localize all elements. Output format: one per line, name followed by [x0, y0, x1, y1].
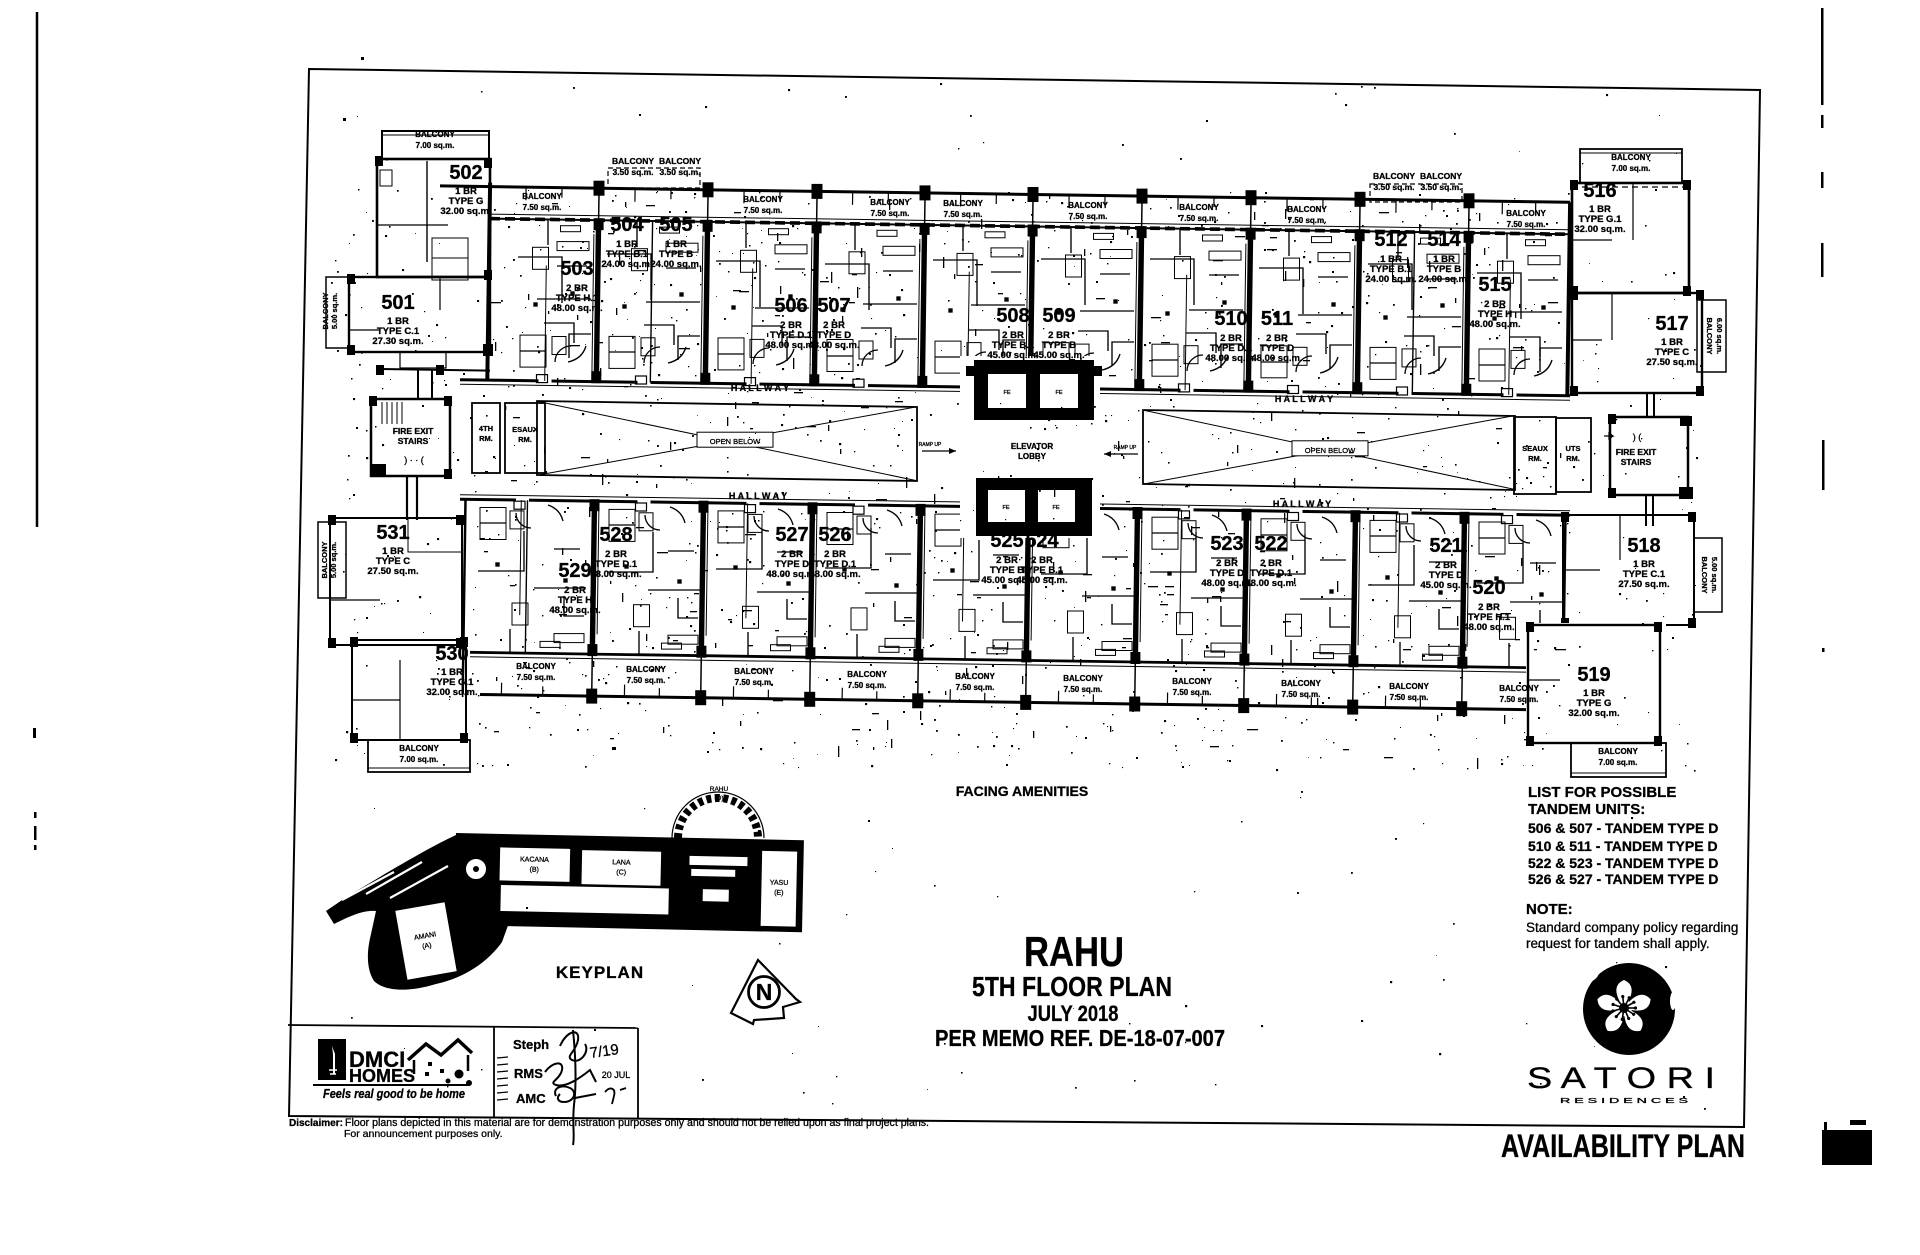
svg-text:(C): (C): [616, 869, 626, 876]
svg-text:528: 528: [599, 524, 632, 546]
svg-text:508: 508: [996, 305, 1029, 327]
svg-text:5.00 sq.m.: 5.00 sq.m.: [329, 542, 338, 578]
svg-text:7.00 sq.m.: 7.00 sq.m.: [416, 141, 455, 150]
svg-text:H A L L W A Y: H A L L W A Y: [729, 491, 787, 501]
svg-text:45.00 sq.m.: 45.00 sq.m.: [987, 350, 1038, 361]
svg-text:BALCONY: BALCONY: [399, 744, 439, 753]
svg-text:RM.: RM.: [479, 434, 493, 443]
svg-text:FIRE EXIT: FIRE EXIT: [1616, 447, 1657, 457]
svg-text:516: 516: [1583, 180, 1616, 202]
svg-text:FACING AMENITIES: FACING AMENITIES: [956, 783, 1089, 799]
svg-text:BALCONY: BALCONY: [1389, 682, 1429, 691]
svg-text:BALCONY: BALCONY: [1063, 674, 1103, 683]
svg-text:48.00 sq.m.: 48.00 sq.m.: [808, 340, 859, 351]
svg-text:509: 509: [1042, 305, 1075, 327]
svg-text:501: 501: [381, 292, 414, 314]
svg-text:524: 524: [1025, 530, 1059, 552]
svg-text:AVAILABILITY PLAN: AVAILABILITY PLAN: [1501, 1128, 1745, 1164]
svg-text:FIRE EXIT: FIRE EXIT: [393, 426, 434, 436]
svg-text:OPEN BELOW: OPEN BELOW: [1305, 446, 1356, 455]
svg-text:7.00 sq.m.: 7.00 sq.m.: [400, 755, 439, 764]
svg-text:526 & 527 - TANDEM TYPE D: 526 & 527 - TANDEM TYPE D: [1528, 871, 1718, 887]
svg-text:NOTE:: NOTE:: [1526, 901, 1573, 918]
svg-text:523: 523: [1210, 533, 1243, 555]
svg-text:7/19: 7/19: [589, 1041, 620, 1062]
svg-text:7.50 sq.m.: 7.50 sq.m.: [1180, 214, 1219, 223]
svg-text:7.50 sq.m.: 7.50 sq.m.: [1390, 693, 1429, 702]
svg-text:4TH: 4TH: [479, 424, 493, 433]
svg-text:7.50 sq.m.: 7.50 sq.m.: [517, 673, 556, 682]
svg-text:BALCONY: BALCONY: [1179, 203, 1219, 212]
svg-text:3.50 sq.m.: 3.50 sq.m.: [612, 167, 653, 177]
svg-text:510: 510: [1214, 308, 1247, 330]
svg-text:45.00 sq.m.: 45.00 sq.m.: [1420, 580, 1471, 591]
svg-text:45.00 sq.m.: 45.00 sq.m.: [1016, 575, 1067, 586]
svg-text:BALCONY: BALCONY: [1506, 209, 1546, 218]
svg-text:7.50 sq.m.: 7.50 sq.m.: [1173, 688, 1212, 697]
svg-text:Feels real good to be home: Feels real good to be home: [323, 1086, 465, 1101]
svg-text:BALCONY: BALCONY: [1373, 171, 1415, 181]
svg-text:506 & 507 - TANDEM TYPE D: 506 & 507 - TANDEM TYPE D: [1528, 820, 1718, 836]
svg-text:PER MEMO REF. DE-18-07-007: PER MEMO REF. DE-18-07-007: [935, 1025, 1225, 1051]
svg-text:27.50 sq.m.: 27.50 sq.m.: [1646, 357, 1697, 368]
svg-text:48.00 sq.m.: 48.00 sq.m.: [1245, 578, 1296, 589]
svg-text:BALCONY: BALCONY: [734, 667, 774, 676]
svg-text:7.50 sq.m.: 7.50 sq.m.: [1064, 685, 1103, 694]
svg-text:5.00 sq.m.: 5.00 sq.m.: [330, 293, 339, 329]
svg-text:7.50 sq.m.: 7.50 sq.m.: [1069, 212, 1108, 221]
svg-text:5TH FLOOR PLAN: 5TH FLOOR PLAN: [972, 971, 1172, 1002]
svg-text:BALCONY: BALCONY: [516, 662, 556, 671]
svg-text:525: 525: [990, 530, 1023, 552]
svg-text:27.50 sq.m.: 27.50 sq.m.: [367, 566, 418, 577]
svg-text:TANDEM UNITS:: TANDEM UNITS:: [1528, 801, 1645, 818]
svg-text:RAMP UP: RAMP UP: [1114, 445, 1137, 451]
svg-text:526: 526: [818, 524, 851, 546]
svg-text:ESAUX: ESAUX: [512, 425, 538, 434]
svg-text:BALCONY: BALCONY: [1172, 677, 1212, 686]
svg-text:Steph: Steph: [513, 1037, 549, 1052]
svg-text:BALCONY: BALCONY: [870, 198, 910, 207]
svg-text:7.50 sq.m.: 7.50 sq.m.: [848, 681, 887, 690]
svg-text:BALCONY: BALCONY: [522, 192, 562, 201]
svg-text:Standard company policy regard: Standard company policy regarding: [1526, 920, 1738, 935]
svg-text:7.50 sq.m.: 7.50 sq.m.: [627, 676, 666, 685]
svg-text:BALCONY: BALCONY: [847, 670, 887, 679]
svg-text:BALCONY: BALCONY: [1700, 556, 1709, 593]
svg-text:7.50 sq.m.: 7.50 sq.m.: [871, 209, 910, 218]
svg-text:48.00 sq.m.: 48.00 sq.m.: [551, 303, 602, 314]
svg-text:KEYPLAN: KEYPLAN: [556, 963, 644, 982]
svg-text:BALCONY: BALCONY: [1420, 171, 1462, 181]
svg-text:BALCONY: BALCONY: [1611, 153, 1651, 162]
svg-text:32.00 sq.m.: 32.00 sq.m.: [1574, 224, 1625, 235]
svg-text:32.00 sq.m.: 32.00 sq.m.: [440, 206, 491, 217]
svg-text:RAMP UP: RAMP UP: [919, 442, 942, 448]
svg-text:FE: FE: [1002, 505, 1009, 511]
svg-text:RMS: RMS: [514, 1066, 543, 1081]
svg-text:LOBBY: LOBBY: [1018, 452, 1047, 461]
svg-text:UTS: UTS: [1566, 444, 1581, 453]
svg-text:7.50 sq.m.: 7.50 sq.m.: [744, 206, 783, 215]
svg-text:BALCONY: BALCONY: [743, 195, 783, 204]
svg-text:32.00 sq.m.: 32.00 sq.m.: [426, 687, 477, 698]
svg-text:(D): (D): [714, 795, 723, 802]
svg-text:506: 506: [774, 295, 807, 317]
svg-text:503: 503: [560, 258, 593, 280]
svg-text:530: 530: [435, 643, 468, 665]
svg-text:BALCONY: BALCONY: [955, 672, 995, 681]
svg-text:48.00 sq.m.: 48.00 sq.m.: [1463, 622, 1514, 633]
svg-text:BALCONY: BALCONY: [1287, 205, 1327, 214]
svg-text:N: N: [756, 979, 773, 1005]
svg-text:48.00 sq.m.: 48.00 sq.m.: [1469, 319, 1520, 330]
svg-text:BALCONY: BALCONY: [1281, 679, 1321, 688]
svg-text:request for tandem shall apply: request for tandem shall apply.: [1526, 936, 1710, 951]
svg-text:7.50 sq.m.: 7.50 sq.m.: [944, 210, 983, 219]
svg-text:FE: FE: [1052, 505, 1059, 511]
svg-text:527: 527: [775, 524, 808, 546]
svg-text:R E S I D E N C E S: R E S I D E N C E S: [1560, 1096, 1688, 1105]
svg-text:512: 512: [1374, 229, 1407, 251]
svg-text:SEAUX: SEAUX: [1522, 444, 1548, 453]
svg-text:3.50 sq.m.: 3.50 sq.m.: [1420, 182, 1461, 192]
svg-text:RM.: RM.: [518, 435, 532, 444]
svg-text:48.00 sq.m.: 48.00 sq.m.: [1205, 353, 1256, 364]
svg-text:48.00 sq.m.: 48.00 sq.m.: [1251, 353, 1302, 364]
svg-text:517: 517: [1655, 313, 1688, 335]
svg-text:5.00 sq.m.: 5.00 sq.m.: [1710, 557, 1719, 593]
svg-text:BALCONY: BALCONY: [659, 156, 701, 166]
svg-text:BALCONY: BALCONY: [612, 156, 654, 166]
svg-text:510 & 511 - TANDEM TYPE D: 510 & 511 - TANDEM TYPE D: [1528, 838, 1718, 854]
svg-text:48.00 sq.m.: 48.00 sq.m.: [590, 569, 641, 580]
svg-text:7.00 sq.m.: 7.00 sq.m.: [1612, 164, 1651, 173]
svg-text:7.50 sq.m.: 7.50 sq.m.: [1507, 220, 1546, 229]
svg-text:521: 521: [1429, 535, 1462, 557]
svg-text:LIST FOR POSSIBLE: LIST FOR POSSIBLE: [1528, 784, 1676, 801]
svg-text:RAHU: RAHU: [710, 786, 729, 793]
svg-text:504: 504: [610, 214, 644, 236]
svg-text:24.00 sq.m.: 24.00 sq.m.: [601, 259, 652, 270]
svg-text:502: 502: [449, 162, 482, 184]
svg-text:STAIRS: STAIRS: [398, 436, 429, 446]
svg-text:RM.: RM.: [1566, 454, 1580, 463]
svg-text:BALCONY: BALCONY: [1705, 317, 1714, 354]
svg-text:27.50 sq.m.: 27.50 sq.m.: [1618, 579, 1669, 590]
svg-text:24.00 sq.m.: 24.00 sq.m.: [650, 259, 701, 270]
svg-text:520: 520: [1472, 577, 1505, 599]
svg-text:518: 518: [1627, 535, 1660, 557]
svg-text:32.00 sq.m.: 32.00 sq.m.: [1568, 708, 1619, 719]
svg-text:7.50 sq.m.: 7.50 sq.m.: [1500, 695, 1539, 704]
svg-text:505: 505: [659, 214, 692, 236]
svg-text:BALCONY: BALCONY: [321, 292, 330, 329]
svg-text:48.00 sq.m.: 48.00 sq.m.: [549, 605, 600, 616]
svg-text:7.50 sq.m.: 7.50 sq.m.: [735, 678, 774, 687]
svg-text:522: 522: [1254, 533, 1287, 555]
svg-text:BALCONY: BALCONY: [320, 541, 329, 578]
svg-text:(B): (B): [529, 867, 538, 874]
svg-text:HOMES: HOMES: [349, 1066, 415, 1086]
svg-text:24.00 sq.m.: 24.00 sq.m.: [1418, 274, 1469, 285]
svg-text:) · · (: ) · · (: [404, 455, 424, 465]
svg-text:BALCONY: BALCONY: [1068, 201, 1108, 210]
svg-text:BALCONY: BALCONY: [943, 199, 983, 208]
svg-text:For announcement purposes only: For announcement purposes only.: [344, 1128, 503, 1140]
svg-text:RAHU: RAHU: [1024, 928, 1124, 975]
svg-text:JULY 2018: JULY 2018: [1028, 1001, 1119, 1026]
svg-text:S A T O R I: S A T O R I: [1527, 1062, 1715, 1095]
svg-text:7.50 sq.m.: 7.50 sq.m.: [1288, 216, 1327, 225]
svg-text:7.00 sq.m.: 7.00 sq.m.: [1599, 758, 1638, 767]
svg-text:519: 519: [1577, 664, 1610, 686]
svg-text:529: 529: [558, 560, 591, 582]
svg-text:514: 514: [1427, 229, 1461, 251]
svg-text:531: 531: [376, 522, 409, 544]
svg-text:RM.: RM.: [1528, 454, 1542, 463]
svg-text:H A L L W A Y: H A L L W A Y: [1275, 394, 1333, 404]
svg-text:YASU: YASU: [770, 880, 789, 887]
svg-text:ELEVATOR: ELEVATOR: [1011, 442, 1053, 451]
svg-text:Disclaimer:: Disclaimer:: [289, 1118, 343, 1129]
svg-text:BALCONY: BALCONY: [1598, 747, 1638, 756]
svg-text:3.50 sq.m.: 3.50 sq.m.: [659, 167, 700, 177]
svg-text:KACANA: KACANA: [520, 856, 549, 864]
svg-text:7.50 sq.m.: 7.50 sq.m.: [1282, 690, 1321, 699]
svg-text:511: 511: [1261, 308, 1293, 330]
svg-text:7.50 sq.m.: 7.50 sq.m.: [523, 203, 562, 212]
svg-text:BALCONY: BALCONY: [1499, 684, 1539, 693]
svg-text:6.00 sq.m.: 6.00 sq.m.: [1715, 318, 1724, 354]
svg-text:48.00 sq.m.: 48.00 sq.m.: [809, 569, 860, 580]
svg-text:(E): (E): [774, 890, 783, 897]
svg-text:522 & 523 - TANDEM TYPE D: 522 & 523 - TANDEM TYPE D: [1528, 855, 1718, 871]
svg-text:27.30 sq.m.: 27.30 sq.m.: [372, 336, 423, 347]
svg-text:FE: FE: [1055, 390, 1062, 396]
svg-text:24.00 sq.m.: 24.00 sq.m.: [1365, 274, 1416, 285]
svg-text:3.50 sq.m.: 3.50 sq.m.: [1373, 182, 1414, 192]
svg-text:LANA: LANA: [612, 859, 631, 866]
svg-text:515: 515: [1478, 274, 1511, 296]
svg-text:20 JUL: 20 JUL: [602, 1070, 631, 1080]
svg-text:BALCONY: BALCONY: [415, 130, 455, 139]
svg-text:) (: ) (: [1633, 432, 1642, 442]
svg-text:AMC: AMC: [516, 1091, 546, 1106]
svg-text:BALCONY: BALCONY: [626, 665, 666, 674]
svg-text:H A L L W A Y: H A L L W A Y: [731, 383, 789, 393]
svg-text:OPEN BELOW: OPEN BELOW: [710, 437, 761, 446]
svg-text:45.00 sq.m.: 45.00 sq.m.: [1033, 350, 1084, 361]
svg-text:FE: FE: [1003, 390, 1010, 396]
svg-text:STAIRS: STAIRS: [1621, 457, 1652, 467]
svg-text:7.50 sq.m.: 7.50 sq.m.: [956, 683, 995, 692]
